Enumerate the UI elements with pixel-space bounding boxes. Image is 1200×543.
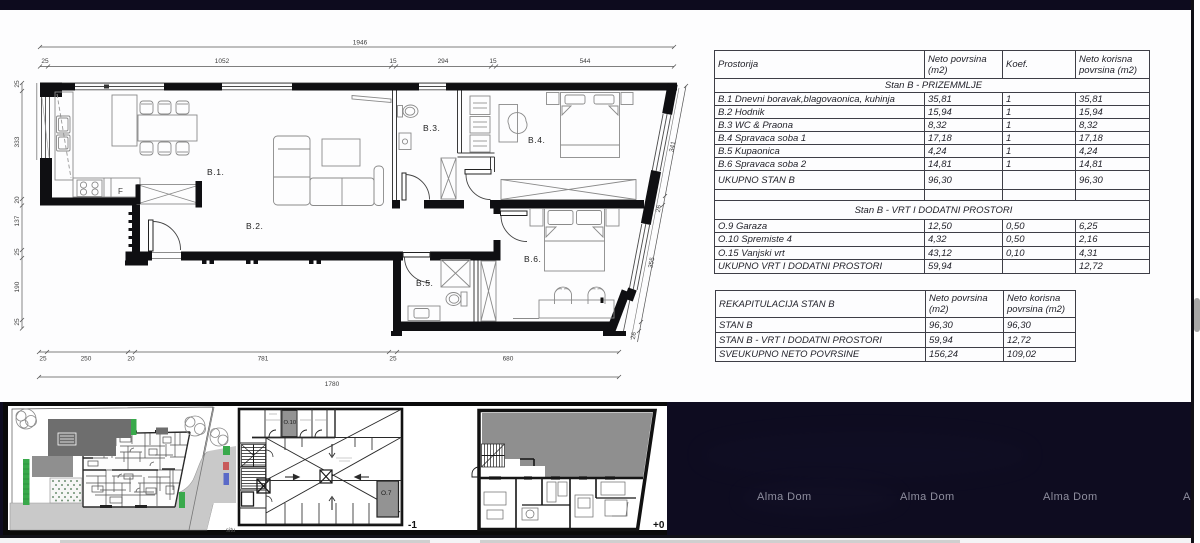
svg-text:544: 544 [580,58,591,65]
svg-text:B.5.: B.5. [416,278,434,288]
svg-text:680: 680 [503,356,514,363]
svg-text:O.7: O.7 [381,490,392,497]
svg-text:B.1.: B.1. [207,167,225,177]
svg-text:341: 341 [668,140,677,152]
svg-text:1052: 1052 [215,58,230,65]
svg-text:25: 25 [39,356,47,363]
svg-text:B.6.: B.6. [524,254,542,264]
svg-text:+0: +0 [653,520,665,531]
svg-text:25: 25 [389,356,397,363]
svg-text:25: 25 [41,58,49,65]
svg-text:294: 294 [438,58,449,65]
svg-text:20: 20 [127,356,135,363]
svg-text:B.2.: B.2. [246,221,264,231]
svg-text:-1: -1 [408,520,417,531]
svg-text:15: 15 [489,58,497,65]
svg-text:B.3.: B.3. [423,123,441,133]
svg-text:1946: 1946 [353,40,368,47]
svg-text:190: 190 [14,281,21,292]
svg-text:26: 26 [655,204,663,213]
svg-text:25: 25 [14,80,21,88]
svg-text:355: 355 [647,256,656,268]
svg-text:15: 15 [389,58,397,65]
svg-text:333: 333 [14,136,21,147]
svg-text:250: 250 [81,356,92,363]
svg-text:781: 781 [258,356,269,363]
svg-text:situ: situ [226,528,235,534]
svg-text:25: 25 [14,318,21,326]
svg-text:20: 20 [14,196,21,204]
svg-text:26: 26 [630,331,638,340]
svg-text:25: 25 [14,248,21,256]
svg-text:B.4.: B.4. [528,135,546,145]
svg-text:137: 137 [14,215,21,226]
svg-text:F: F [118,187,123,196]
svg-text:O.10: O.10 [284,420,297,426]
svg-text:1780: 1780 [325,381,340,388]
